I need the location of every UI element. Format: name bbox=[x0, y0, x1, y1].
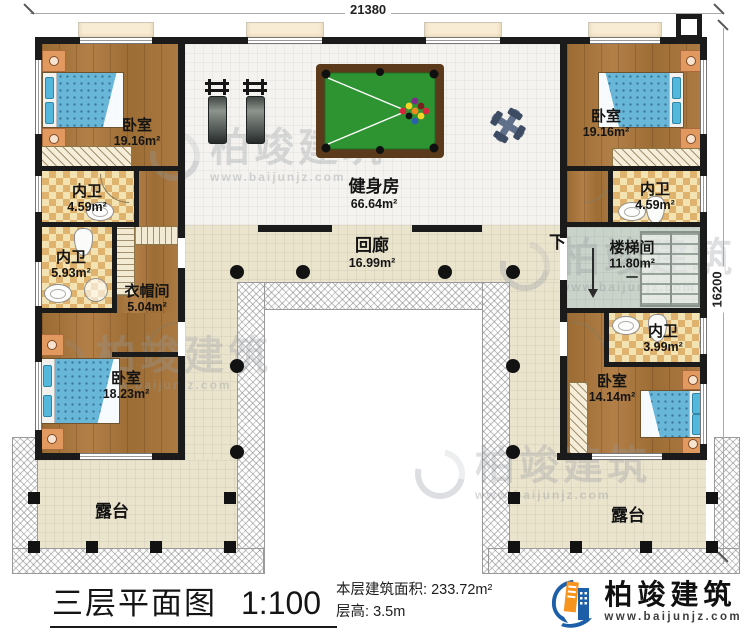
pillow bbox=[43, 395, 52, 417]
nightstand bbox=[680, 128, 702, 150]
terrace-post bbox=[224, 541, 236, 553]
wall bbox=[560, 222, 707, 227]
door-opening bbox=[178, 322, 185, 356]
terrace-post bbox=[28, 541, 40, 553]
window bbox=[700, 176, 707, 212]
room-label-gym: 健身房 66.64m² bbox=[349, 177, 400, 211]
room-label-bath-l: 内卫 5.93m² bbox=[51, 249, 91, 281]
corridor-left-arm bbox=[185, 282, 237, 460]
wall bbox=[258, 225, 332, 232]
area-label: 本层建筑面积: bbox=[336, 582, 427, 598]
window bbox=[35, 362, 42, 430]
window bbox=[700, 318, 707, 354]
wall bbox=[112, 227, 117, 308]
column bbox=[506, 359, 520, 373]
barbell bbox=[205, 82, 229, 85]
weight-bench bbox=[204, 82, 230, 144]
closet-shelf bbox=[134, 226, 180, 245]
door-opening bbox=[560, 322, 567, 356]
room-label-bedroom-tr: 卧室 19.16m² bbox=[583, 108, 630, 140]
window bbox=[700, 60, 707, 134]
bed-headboard bbox=[43, 73, 57, 127]
shower-drain bbox=[84, 278, 108, 302]
room-label-corridor: 回廊 16.99m² bbox=[349, 236, 396, 270]
window bbox=[80, 37, 152, 44]
weight-bench bbox=[242, 82, 268, 144]
terrace-post bbox=[224, 492, 236, 504]
wardrobe bbox=[612, 148, 702, 167]
wall bbox=[35, 166, 185, 171]
nightstand bbox=[40, 334, 64, 356]
barbell bbox=[243, 89, 267, 92]
window bbox=[426, 37, 500, 44]
pillow bbox=[45, 102, 54, 124]
terrace-r-floor bbox=[508, 460, 706, 548]
wall bbox=[560, 166, 707, 171]
sink bbox=[612, 316, 640, 335]
window bbox=[35, 176, 42, 212]
wall bbox=[35, 222, 139, 227]
wardrobe bbox=[569, 382, 588, 454]
wall bbox=[35, 308, 117, 313]
window bbox=[590, 37, 660, 44]
wall bbox=[604, 362, 707, 367]
plan-scale: 1:100 bbox=[241, 585, 321, 622]
terrace-post bbox=[706, 492, 718, 504]
stair-down-label: 下 bbox=[549, 228, 566, 253]
pool-table bbox=[316, 64, 444, 158]
wall bbox=[412, 225, 482, 232]
nightstand bbox=[42, 50, 66, 72]
bed-headboard bbox=[41, 359, 55, 423]
bed-quilt bbox=[641, 391, 689, 437]
barbell bbox=[205, 89, 229, 92]
terrace-post bbox=[28, 492, 40, 504]
column bbox=[438, 265, 452, 279]
floor-height-value: 3.5m bbox=[373, 604, 405, 620]
wall bbox=[604, 313, 609, 362]
column bbox=[230, 445, 244, 459]
terrace-post bbox=[570, 541, 582, 553]
room-label-stairwell: 楼梯间 11.80m² 一 bbox=[609, 239, 655, 284]
room-label-terrace-r: 露台 bbox=[611, 506, 645, 526]
courtyard bbox=[237, 282, 508, 572]
room-label-bath-tr: 内卫 4.59m² bbox=[635, 181, 675, 213]
sink bbox=[44, 284, 72, 303]
wall bbox=[560, 308, 707, 313]
pillow bbox=[45, 77, 54, 99]
door-opening bbox=[178, 238, 185, 268]
window bbox=[35, 262, 42, 306]
bed-headboard bbox=[669, 73, 683, 127]
room-label-cloak: 衣帽间 5.04m² bbox=[124, 283, 169, 315]
brand-logo: 柏竣建筑 www.baijunjz.com bbox=[547, 574, 742, 630]
bed-br bbox=[640, 390, 704, 438]
brand-name: 柏竣建筑 bbox=[604, 581, 742, 609]
room-label-bedroom-br: 卧室 14.14m² bbox=[589, 373, 636, 405]
window bbox=[35, 60, 42, 134]
terrace-post bbox=[508, 541, 520, 553]
quilt-fold bbox=[641, 391, 665, 437]
column bbox=[230, 359, 244, 373]
terrace-l-floor bbox=[36, 460, 237, 548]
bed-tl bbox=[42, 72, 124, 128]
room-label-bath-tl: 内卫 4.59m² bbox=[67, 183, 107, 215]
pillow bbox=[43, 365, 52, 387]
column bbox=[296, 265, 310, 279]
pillow bbox=[672, 77, 681, 99]
terrace-post bbox=[640, 541, 652, 553]
floor-height-label: 层高: bbox=[336, 604, 369, 620]
column bbox=[506, 445, 520, 459]
brand-url: www.baijunjz.com bbox=[604, 611, 742, 623]
room-label-bedroom-tl: 卧室 19.16m² bbox=[114, 117, 161, 149]
dim-tick bbox=[23, 3, 34, 14]
title-bar: 三层平面图 1:100 本层建筑面积: 233.72m² 层高: 3.5m bbox=[0, 578, 750, 634]
courtyard-rail-left bbox=[237, 282, 265, 574]
bench-slab bbox=[246, 96, 265, 144]
dumbbells-icon bbox=[486, 104, 530, 148]
column bbox=[230, 265, 244, 279]
stair-down-arrow bbox=[592, 248, 594, 294]
barbell bbox=[243, 82, 267, 85]
floorplan-sheet: 21380 16200 柏竣建筑 www.baijunjz.com 柏竣建筑 w… bbox=[0, 0, 750, 634]
bench-slab bbox=[208, 96, 227, 144]
chimney bbox=[676, 14, 702, 40]
plan-title: 三层平面图 bbox=[52, 578, 217, 623]
area-value: 233.72m² bbox=[431, 582, 492, 598]
brand-logo-icon bbox=[547, 574, 599, 630]
window bbox=[700, 384, 707, 444]
nightstand bbox=[680, 50, 702, 72]
wall bbox=[134, 171, 139, 222]
plan-info: 本层建筑面积: 233.72m² 层高: 3.5m bbox=[336, 579, 492, 624]
terrace-post bbox=[706, 541, 718, 553]
courtyard-rail-right bbox=[482, 282, 510, 574]
terrace-r-rail-bottom bbox=[488, 548, 740, 574]
plan-title-block: 三层平面图 1:100 bbox=[50, 578, 337, 628]
wall bbox=[608, 171, 613, 222]
room-label-terrace-l: 露台 bbox=[95, 502, 129, 522]
wardrobe bbox=[38, 146, 132, 167]
nightstand bbox=[40, 428, 64, 450]
terrace-post bbox=[508, 492, 520, 504]
room-label-bedroom-bl: 卧室 18.23m² bbox=[103, 370, 150, 402]
room-label-bath-br: 内卫 3.99m² bbox=[643, 323, 683, 355]
dim-label-right: 16200 bbox=[710, 266, 725, 312]
window bbox=[248, 37, 322, 44]
terrace-post bbox=[86, 541, 98, 553]
courtyard-rail-top bbox=[237, 282, 510, 310]
pillow bbox=[672, 102, 681, 124]
window bbox=[592, 453, 662, 460]
terrace-post bbox=[150, 541, 162, 553]
column bbox=[506, 265, 520, 279]
window bbox=[80, 453, 152, 460]
dim-label-top: 21380 bbox=[345, 2, 391, 17]
wall bbox=[112, 352, 185, 357]
